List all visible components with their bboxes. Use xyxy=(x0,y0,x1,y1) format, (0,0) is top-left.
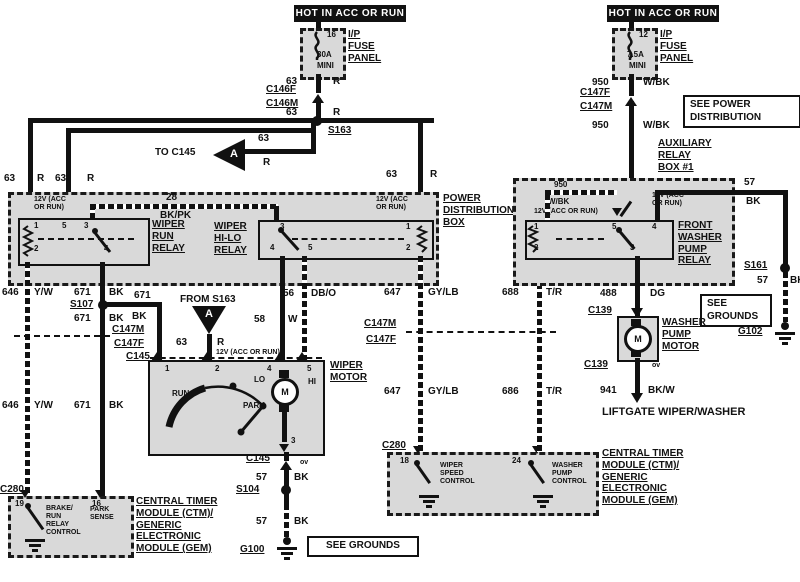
ground-symbol xyxy=(418,490,440,510)
pin-arrow xyxy=(201,352,213,361)
wire-label: 28 xyxy=(166,192,177,204)
wire-label: Y/W xyxy=(34,400,53,412)
pdb-label: POWER DISTRIBUTION BOX xyxy=(443,193,514,228)
wire-label: DB/O xyxy=(311,288,336,300)
wire-label: W xyxy=(288,314,297,326)
wire-label: R xyxy=(87,173,94,185)
pin-arrow xyxy=(151,352,163,361)
wire-label: 58 xyxy=(254,314,265,326)
wire-646-yw xyxy=(25,262,30,498)
wiper-hilo-relay-label: WIPER HI-LO RELAY xyxy=(214,221,247,256)
relay-coil-icon xyxy=(416,226,428,252)
pin-label: 2 xyxy=(34,244,38,253)
hot-banner-left: HOT IN ACC OR RUN xyxy=(294,5,406,22)
wire-label: R xyxy=(37,173,44,185)
ctm-label: CENTRAL TIMER MODULE (CTM)/ GENERIC ELEC… xyxy=(136,496,217,555)
splice-label-s104: S104 xyxy=(236,484,259,496)
pin-label: 3 xyxy=(291,436,295,445)
see-grounds-note: SEE GROUNDS xyxy=(307,536,419,557)
wire-label: 950 xyxy=(592,120,609,132)
wire-671-branch xyxy=(100,302,162,307)
connector-label: C139 xyxy=(584,359,608,371)
pin-label: 5 xyxy=(308,243,312,252)
ground-label-g102: G102 xyxy=(738,326,762,338)
pin-arrow xyxy=(612,208,622,216)
wire-label: BK xyxy=(746,196,760,208)
pin-label: 5 xyxy=(62,221,66,230)
motor-terminal xyxy=(279,370,289,378)
wire-label: 647 xyxy=(384,287,401,299)
wire-label: 671 xyxy=(74,400,91,412)
brake-run-control-label: BRAKE/ RUN RELAY CONTROL xyxy=(46,505,81,537)
wire-label: Y/W xyxy=(34,287,53,299)
splice-label-s163: S163 xyxy=(328,125,351,137)
ground-symbol xyxy=(532,490,554,510)
wire-label: 671 xyxy=(74,313,91,325)
wire xyxy=(244,149,316,154)
wire-label: 941 xyxy=(600,385,617,397)
wire-label: 63 xyxy=(55,173,66,185)
connector-label: C147F xyxy=(114,338,144,350)
pin-label: 3 xyxy=(84,221,88,230)
pin-arrow xyxy=(296,352,308,361)
pin-arrow xyxy=(20,490,30,498)
wire-label: 63 xyxy=(386,169,397,181)
wire-57-bk xyxy=(783,195,788,271)
pin-arrow xyxy=(274,352,286,361)
connector-line-c147 xyxy=(406,331,556,333)
wire-label: R xyxy=(430,169,437,181)
wire-label: 488 xyxy=(600,288,617,300)
wire-label: 56 xyxy=(283,288,294,300)
wire-label: BK/PK xyxy=(160,210,191,222)
hi-label: HI xyxy=(308,377,316,386)
wire-label: 671 xyxy=(74,287,91,299)
motor-terminal xyxy=(631,350,641,357)
relay-internal-link xyxy=(556,238,604,240)
arrow-letter: A xyxy=(230,148,238,160)
wire-28 xyxy=(274,206,279,220)
pin-label: 5 xyxy=(307,364,311,373)
wire-label: T/R xyxy=(546,287,562,299)
wiper-run-relay-label: WIPER RUN RELAY xyxy=(152,219,185,254)
wire-arrow xyxy=(631,393,643,403)
voltage-note: 12V (ACC OR RUN) xyxy=(534,208,598,216)
wire-label: BK xyxy=(109,400,123,412)
off-page-arrow-a xyxy=(213,139,245,171)
relay-coil-icon xyxy=(22,226,34,256)
wire-label: 57 xyxy=(757,275,768,287)
wire-label: 57 xyxy=(256,472,267,484)
wire-label: W/BK xyxy=(548,197,569,206)
wire-941-bkw xyxy=(635,358,640,394)
pin-arrow xyxy=(279,444,289,452)
park-label: PARK xyxy=(243,401,265,410)
wire-57-bk xyxy=(284,504,289,538)
to-c145-label: TO C145 xyxy=(155,147,195,159)
connector-label: C147M xyxy=(580,101,612,113)
see-power-note: SEE POWER DISTRIBUTION xyxy=(683,95,800,128)
fuse-number: 16 xyxy=(327,30,336,39)
run-label: RUN xyxy=(172,389,189,398)
wiring-diagram: HOT IN ACC OR RUN 16 30A MINI I/P FUSE P… xyxy=(0,0,800,582)
wire-label: BK xyxy=(132,311,146,323)
motor-symbol: M xyxy=(271,378,299,406)
wire-28-bkpk xyxy=(90,204,278,209)
voltage-note: 12V (ACC OR RUN) xyxy=(216,349,280,357)
voltage-note: 12V (ACC OR RUN) xyxy=(34,196,66,212)
fwp-relay-label: FRONT WASHER PUMP RELAY xyxy=(678,220,722,267)
pin-label: 2 xyxy=(406,243,410,252)
fuse-size: MINI xyxy=(317,61,334,70)
fuse-rating: 7.5A xyxy=(627,50,644,59)
wire-56-dbo xyxy=(302,256,307,360)
aux-box-label: AUXILIARY RELAY BOX #1 xyxy=(658,138,712,173)
pin-label: 1 xyxy=(406,222,410,231)
connector-label: C145 xyxy=(126,351,150,363)
connector-line-c147 xyxy=(14,335,110,337)
wire-bus-lower xyxy=(66,128,316,133)
wire-label: 63 xyxy=(4,173,15,185)
wire-label: GY/LB xyxy=(428,386,459,398)
wire-label: 57 xyxy=(744,177,755,189)
wire-label: 686 xyxy=(502,386,519,398)
splice-s104 xyxy=(281,485,291,495)
pin-label: 1 xyxy=(34,221,38,230)
connector-label: C147M xyxy=(364,318,396,330)
pin-label: 4 xyxy=(270,243,274,252)
wire-label: BK xyxy=(294,516,308,528)
connector-symbol xyxy=(625,97,637,106)
wire-label: GY/LB xyxy=(428,287,459,299)
wire xyxy=(655,195,660,220)
ground-symbol-g102 xyxy=(774,327,796,347)
liftgate-label: LIFTGATE WIPER/WASHER xyxy=(602,406,745,419)
wire xyxy=(545,194,550,220)
washer-pump-motor-label: WASHER PUMP MOTOR xyxy=(662,317,706,352)
voltage-note: 12V (ACC OR RUN) xyxy=(376,196,408,212)
wire-label: BK xyxy=(109,287,123,299)
fuse-number: 12 xyxy=(639,30,648,39)
motor-terminal xyxy=(279,404,289,412)
see-grounds-note: SEE GROUNDS xyxy=(700,294,772,327)
wire-label: 63 xyxy=(258,133,269,145)
relay-internal-link xyxy=(292,238,404,240)
pin-label: 18 xyxy=(400,456,409,465)
wire-label: T/R xyxy=(546,386,562,398)
wire-950-inside xyxy=(545,190,617,195)
hot-banner-right: HOT IN ACC OR RUN xyxy=(607,5,719,22)
fuse-size: MINI xyxy=(629,61,646,70)
splice-label-s107: S107 xyxy=(70,299,93,311)
connector-label: C280 xyxy=(382,440,406,452)
wiper-motor-label: WIPER MOTOR xyxy=(330,360,367,384)
wire-488-dg xyxy=(635,256,640,316)
wire-label: R xyxy=(333,76,340,88)
pin-label: 19 xyxy=(15,499,24,508)
relay-internal-link xyxy=(38,238,134,240)
wire-label: 63 xyxy=(176,337,187,349)
relay-coil-icon xyxy=(527,226,539,252)
wire-671-bk xyxy=(100,262,105,498)
connector-label: C147M xyxy=(112,324,144,336)
ground-label-g100: G100 xyxy=(240,544,264,556)
wire-label: DG xyxy=(650,288,665,300)
wire-label: R xyxy=(263,157,270,169)
wire-label: W/BK xyxy=(643,120,670,132)
wire-label: 950 xyxy=(554,180,567,189)
arrow-letter: A xyxy=(205,308,213,320)
wire-label: BK xyxy=(294,472,308,484)
motor-symbol: M xyxy=(624,325,652,353)
voltage-label: ov xyxy=(652,362,660,370)
connector-label: C147F xyxy=(366,334,396,346)
wire-label: 57 xyxy=(256,516,267,528)
wire-label: 646 xyxy=(2,287,19,299)
wire-label: 671 xyxy=(134,290,151,302)
ground-symbol-g100 xyxy=(276,542,298,562)
wire xyxy=(282,412,287,442)
pin-arrow xyxy=(95,490,105,498)
splice-label-s161: S161 xyxy=(744,260,767,272)
from-s163-label: FROM S163 xyxy=(180,294,236,306)
pin-arrow xyxy=(413,446,423,454)
wiper-speed-control-label: WIPER SPEED CONTROL xyxy=(440,462,475,486)
wire-57-bk xyxy=(655,190,788,195)
voltage-label: ov xyxy=(300,459,308,467)
wire-label: BK/W xyxy=(648,385,675,397)
washer-pump-control-label: WASHER PUMP CONTROL xyxy=(552,462,587,486)
wire-label: 688 xyxy=(502,287,519,299)
wire-57-bk xyxy=(783,272,788,322)
ground-symbol xyxy=(24,534,46,554)
ctm-label: CENTRAL TIMER MODULE (CTM)/ GENERIC ELEC… xyxy=(602,448,683,507)
wire-label: 647 xyxy=(384,386,401,398)
connector-label: C139 xyxy=(588,305,612,317)
wire-647-gylb xyxy=(418,256,423,452)
pin-label: 24 xyxy=(512,456,521,465)
fuse-panel-label: I/P FUSE PANEL xyxy=(348,29,381,64)
wire-label: 646 xyxy=(2,400,19,412)
connector-label: C145 xyxy=(246,453,270,465)
fuse-panel-label: I/P FUSE PANEL xyxy=(660,29,693,64)
wire-label: BK xyxy=(790,275,800,287)
wire-58-w xyxy=(280,256,285,360)
connector-label: C147F xyxy=(580,87,610,99)
lo-label: LO xyxy=(254,375,265,384)
connector-label-c146f: C146F xyxy=(266,84,296,96)
pin-label: 4 xyxy=(652,222,656,231)
wire-bus xyxy=(28,118,434,123)
park-sense-label: PARK SENSE xyxy=(90,506,114,522)
fuse-rating: 30A xyxy=(317,50,332,59)
wire-label: W/BK xyxy=(643,77,670,89)
connector-symbol xyxy=(312,94,324,103)
wire-label: R xyxy=(217,337,224,349)
